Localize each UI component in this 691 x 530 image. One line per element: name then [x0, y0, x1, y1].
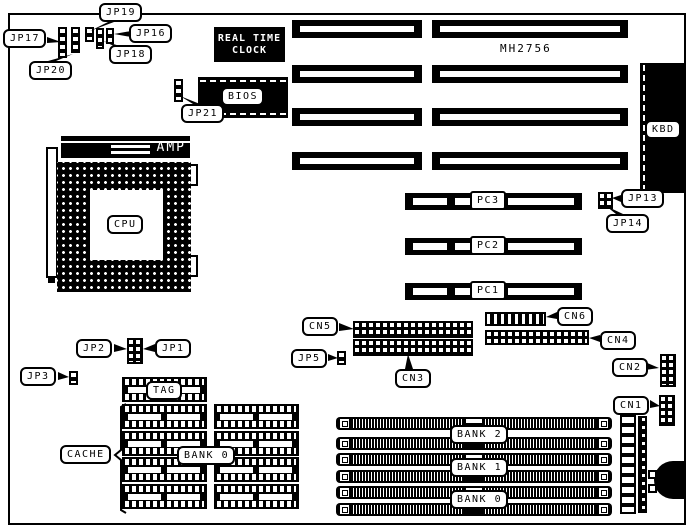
cpu-socket-foot: [48, 276, 55, 283]
isa-slot: [432, 108, 628, 126]
din-pin-1: [648, 470, 657, 479]
pin-header-cn3: [353, 339, 473, 356]
pci-slot-label-pc3: PC3: [470, 191, 506, 210]
jumper-block-jp16: [106, 28, 114, 44]
isa-slot: [292, 152, 422, 170]
cache-chip: [122, 484, 207, 509]
jumper-block-jp3: [69, 371, 78, 385]
rtc-label: REAL TIME CLOCK: [214, 27, 285, 62]
isa-slot: [292, 65, 422, 83]
jumper-label-jp2: JP2: [76, 339, 112, 358]
jumper-label-jp19: JP19: [99, 3, 142, 22]
jumper-label-jp5: JP5: [291, 349, 327, 368]
jumper-label-jp16: JP16: [129, 24, 172, 43]
connector-label-cn4: CN4: [600, 331, 636, 350]
simm-bank1-label: BANK 1: [450, 458, 508, 477]
pin-header-cn6: [485, 312, 546, 326]
jumper-block-jp18: [96, 28, 104, 49]
jumper-block-jp1-jp2: [127, 338, 143, 364]
isa-slot: [432, 152, 628, 170]
jumper-block-jp17: [58, 27, 67, 58]
simm-bank0-label: BANK 0: [450, 490, 508, 509]
jumper-label-jp14: JP14: [606, 214, 649, 233]
isa-slot: [432, 20, 628, 38]
power-connector-pins: [638, 416, 647, 513]
tag-label: TAG: [146, 381, 182, 400]
jumper-label-jp13: JP13: [621, 189, 664, 208]
pci-slot-label-pc2: PC2: [470, 236, 506, 255]
isa-slot: [292, 108, 422, 126]
cache-label: CACHE: [60, 445, 111, 464]
pin-header-cn5: [353, 321, 473, 338]
connector-label-cn1: CN1: [613, 396, 649, 415]
cache-chip: [214, 404, 299, 429]
jumper-block-jp5: [337, 351, 346, 365]
cache-chip: [214, 484, 299, 509]
isa-slot: [432, 65, 628, 83]
connector-label-cn6: CN6: [557, 307, 593, 326]
jumper-label-jp20: JP20: [29, 61, 72, 80]
jumper-label-jp3: JP3: [20, 367, 56, 386]
rtc-line2: CLOCK: [232, 45, 267, 57]
connector-label-cn5: CN5: [302, 317, 338, 336]
cache-chip: [122, 404, 207, 429]
cpu-label: CPU: [107, 215, 143, 234]
pin-header-cn2: [660, 354, 676, 387]
connector-label-cn2: CN2: [612, 358, 648, 377]
amp-stripe-1: [111, 145, 150, 148]
jumper-block-jp19: [85, 27, 94, 42]
din-keyboard-connector: [654, 461, 686, 499]
jumper-block-jp13-jp14: [598, 192, 613, 209]
pci-slot-label-pc1: PC1: [470, 281, 506, 300]
amp-connector: AMP: [61, 136, 190, 158]
pin-header-cn4: [485, 330, 589, 345]
bios-label: BIOS: [221, 87, 264, 106]
din-pin-2: [648, 484, 657, 493]
jumper-label-jp21: JP21: [181, 104, 224, 123]
jumper-block-jp21: [174, 79, 183, 102]
jumper-block-jp20: [71, 27, 80, 53]
motherboard-diagram: JP17 JP19 JP16 JP18 JP20 REAL TIME CLOCK…: [0, 0, 691, 530]
pin-header-cn1: [659, 395, 675, 426]
rtc-line1: REAL TIME: [218, 33, 281, 45]
kbd-label: KBD: [645, 120, 681, 139]
cache-bank-label: BANK 0: [177, 446, 235, 465]
amp-stripe-2: [111, 151, 150, 154]
rtc-chip: REAL TIME CLOCK: [214, 27, 285, 62]
jumper-label-jp17: JP17: [3, 29, 46, 48]
simm-bank2-label: BANK 2: [450, 425, 508, 444]
amp-label: AMP: [157, 140, 186, 155]
jumper-label-jp18: JP18: [109, 45, 152, 64]
isa-slot: [292, 20, 422, 38]
power-connector: [620, 415, 636, 514]
jumper-label-jp1: JP1: [155, 339, 191, 358]
connector-label-cn3: CN3: [395, 369, 431, 388]
board-marking: MH2756: [500, 42, 552, 55]
